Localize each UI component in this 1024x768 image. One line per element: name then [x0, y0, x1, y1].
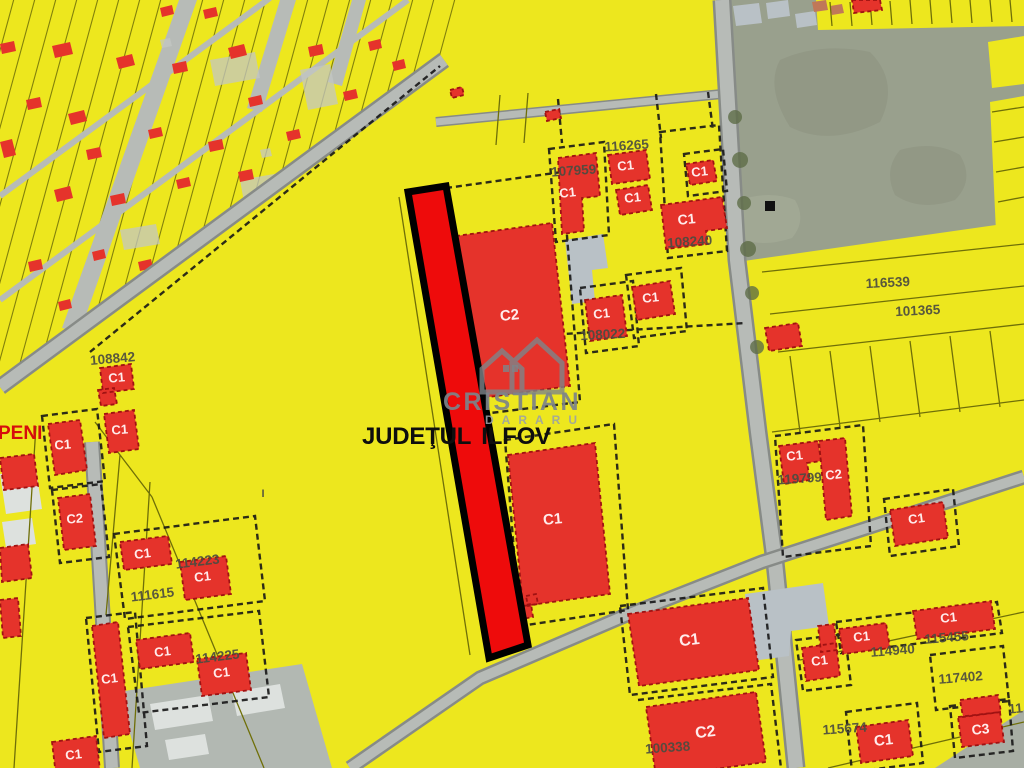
building-class-label: C1 [907, 510, 926, 527]
building-class-label: C2 [824, 466, 842, 483]
building-class-label: C1 [212, 664, 230, 681]
building-class-label: C1 [558, 184, 576, 201]
parcel-number-label: 107959 [551, 161, 597, 179]
building-class-label: C1 [678, 631, 700, 650]
parcel-number-label: 11 [1008, 700, 1024, 716]
building-class-label: C2 [66, 510, 84, 526]
building-class-label: C1 [193, 568, 211, 585]
building-class-label: C1 [690, 163, 708, 180]
building-class-label: C1 [54, 436, 72, 452]
building-class-label: C1 [785, 447, 803, 464]
building-class-label: C1 [873, 731, 894, 750]
parcel-number-label: I [261, 488, 264, 500]
houses-icon-window [503, 365, 509, 372]
parcel-number-label: 115674 [822, 719, 868, 737]
parcel-number-label: 101365 [895, 302, 941, 319]
building-class-label: C1 [810, 652, 828, 669]
building-class-label: C3 [971, 720, 991, 738]
county-label: JUDEŢUL ILFOV [362, 423, 551, 450]
cadastral-map: 1162651079591082401080221165391013651088… [0, 0, 1024, 768]
building-class-label: C1 [852, 628, 870, 645]
building-class-label: C2 [694, 723, 716, 742]
building-class-label: C1 [108, 369, 126, 385]
parcel-number-label: 119799 [777, 469, 822, 487]
building-class-label: C1 [133, 545, 151, 562]
building-class-label: C1 [677, 210, 697, 228]
parcel-number-label: 100338 [645, 738, 691, 756]
building-class-label: C1 [939, 609, 957, 626]
building-class-label: C1 [111, 421, 129, 437]
building-class-label: C1 [100, 670, 118, 687]
building-class-label: C1 [542, 510, 563, 529]
watermark-brand: CRISTIAN [443, 388, 581, 416]
building-class-label: C1 [592, 305, 610, 322]
field-marker-dot [765, 201, 775, 211]
building-class-label: C1 [153, 643, 171, 660]
parcel-number-label: 108022 [580, 326, 626, 343]
right-edge-parcel-a [988, 36, 1024, 88]
top-edge-parcels [816, 0, 1024, 30]
building-class-label: C1 [623, 189, 641, 206]
parcel-number-label: 116265 [604, 136, 650, 154]
cadastral-map-screenshot: 1162651079591082401080221165391013651088… [0, 0, 1024, 768]
building-class-label: C1 [641, 289, 659, 306]
houses-icon-window [512, 365, 518, 372]
building-class-label: C2 [499, 306, 520, 325]
partial-place-label: PENI [0, 423, 42, 444]
right-edge-parcel-b [990, 96, 1024, 232]
parcel-number-label: 108240 [667, 232, 713, 250]
building-class-label: C1 [64, 746, 82, 763]
building-class-label: C1 [616, 157, 634, 174]
parcel-number-label: 116539 [865, 274, 910, 291]
